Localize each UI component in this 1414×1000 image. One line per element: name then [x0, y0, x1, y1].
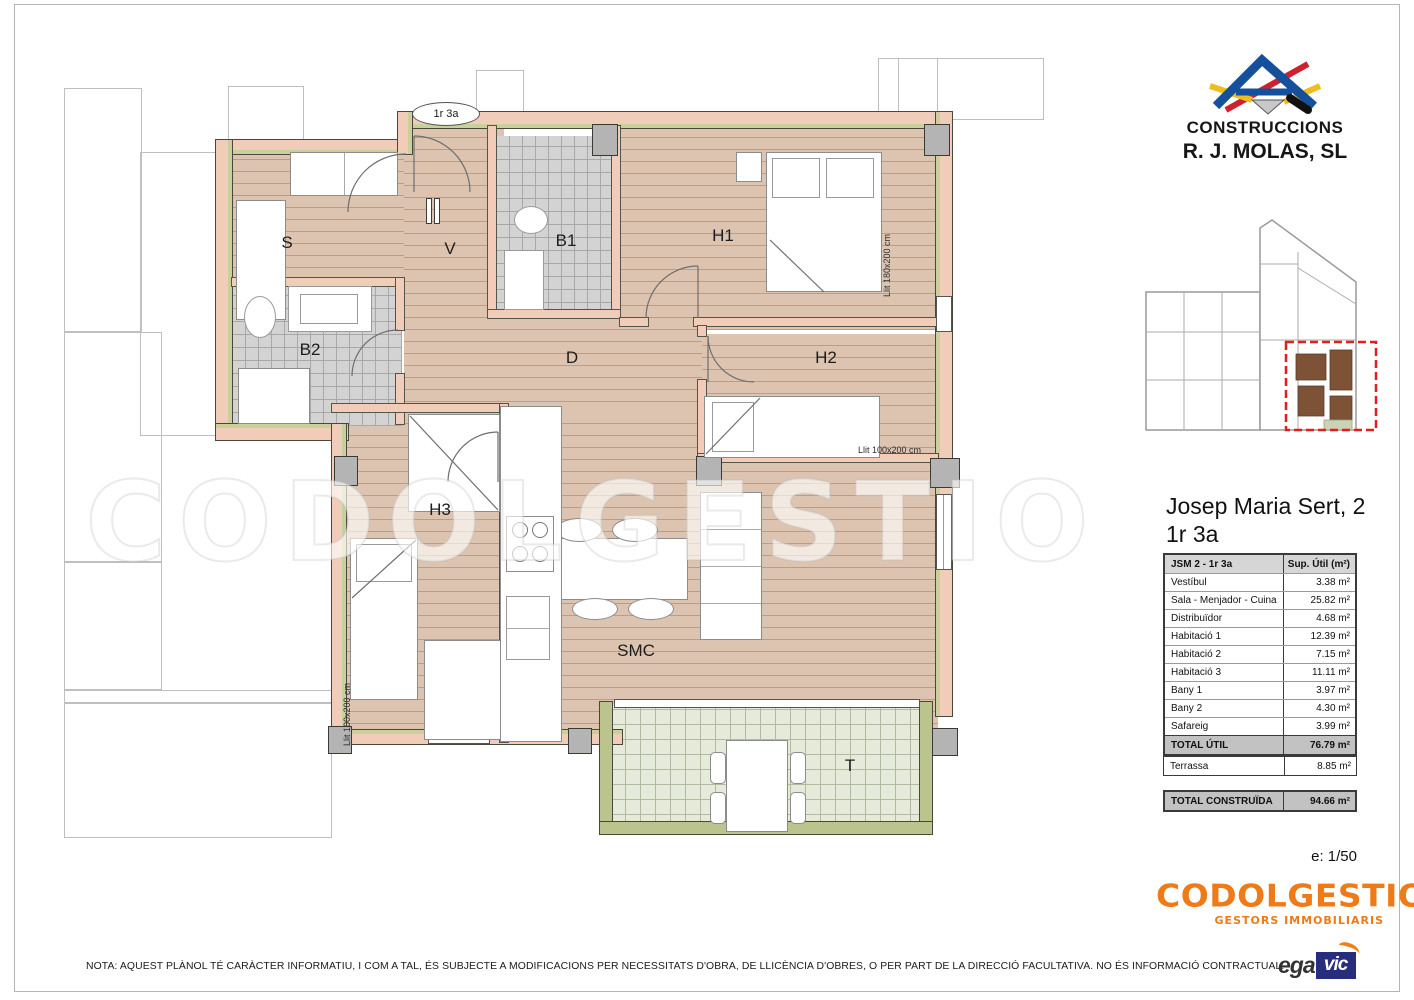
burner-icon [512, 546, 528, 562]
door-hinge [434, 198, 440, 224]
neighbor-terrace-line [64, 702, 332, 704]
sliding-door [614, 699, 920, 708]
total-built-name: TOTAL CONSTRUÏDA [1165, 792, 1283, 810]
floor-plan: S V B1 H1 B2 D H2 H3 SMC T Llit 180x200 … [0, 0, 1130, 1000]
toilet-icon [514, 206, 548, 234]
pillow [826, 158, 874, 198]
row-value: 4.30 m² [1283, 700, 1355, 717]
chair [790, 792, 806, 824]
toilet-icon [244, 296, 276, 338]
exterior-wall [936, 112, 952, 716]
chair [612, 518, 658, 542]
row-value: 3.38 m² [1283, 574, 1355, 591]
table-header-value: Sup. Útil (m²) [1283, 555, 1355, 573]
terrace-wall [600, 702, 612, 834]
kitchen-sink [506, 596, 550, 660]
dining-table [548, 538, 688, 600]
wall-segment [488, 126, 496, 318]
egavic-text-left: ega [1278, 952, 1315, 979]
table-row: Habitació 112.39 m² [1165, 627, 1355, 645]
stove-icon [506, 516, 554, 572]
address-line: Josep Maria Sert, 2 [1166, 492, 1365, 520]
table-row: Vestíbul3.38 m² [1165, 573, 1355, 591]
wall-segment [698, 326, 706, 336]
unit-tag-label: 1r 3a [433, 108, 458, 120]
row-value: 11.11 m² [1283, 664, 1355, 681]
neighbor-outline [64, 562, 162, 690]
total-built-table: TOTAL CONSTRUÏDA 94.66 m² [1163, 790, 1357, 812]
table-row: Safareig3.99 m² [1165, 717, 1355, 735]
room-label-h1: H1 [712, 226, 734, 246]
exterior-wall [216, 424, 348, 440]
window [936, 494, 952, 570]
plan-sheet: { "logo": {"line1": "CONSTRUCCIONS", "li… [0, 0, 1414, 1000]
shower [238, 368, 310, 424]
egavic-box: vic [1316, 952, 1356, 979]
terrassa-value: 8.85 m² [1284, 757, 1356, 775]
row-value: 25.82 m² [1283, 592, 1355, 609]
column [930, 458, 960, 488]
chair [710, 752, 726, 784]
terrassa-table: Terrassa 8.85 m² [1163, 756, 1357, 776]
window [936, 296, 952, 332]
pillow [772, 158, 820, 198]
room-label-smc: SMC [617, 641, 655, 661]
chair [556, 518, 602, 542]
kitchen-counter [500, 406, 562, 742]
room-label-d: D [566, 348, 578, 368]
row-value: 3.97 m² [1283, 682, 1355, 699]
sink [504, 250, 544, 310]
pillow [712, 402, 754, 452]
table-row: Bany 24.30 m² [1165, 699, 1355, 717]
chair [790, 752, 806, 784]
row-name: Bany 2 [1165, 700, 1283, 717]
mini-terrace [1324, 420, 1352, 430]
builder-logo-text: CONSTRUCCIONS R. J. MOLAS, SL [1150, 118, 1380, 164]
wardrobe [290, 152, 398, 196]
table-row: Distribuïdor4.68 m² [1165, 609, 1355, 627]
burner-icon [532, 546, 548, 562]
burner-icon [532, 522, 548, 538]
unit-line: 1r 3a [1166, 520, 1365, 548]
wall-segment [488, 310, 620, 318]
bed-size-annotation: Llit 100x200 cm [858, 445, 921, 455]
column [696, 456, 722, 486]
row-name: Bany 1 [1165, 682, 1283, 699]
row-name: Sala - Menjador - Cuina [1165, 592, 1283, 609]
door-hinge [426, 198, 432, 224]
room-label-v: V [444, 239, 455, 259]
wall-segment [620, 318, 648, 326]
nightstand [736, 152, 762, 182]
room-label-h2: H2 [815, 348, 837, 368]
scale-label: e: 1/50 [1163, 848, 1357, 865]
wall-segment [332, 404, 508, 412]
exterior-wall [398, 112, 950, 128]
column [924, 124, 950, 156]
codolgestio-logo: CODOLGESTIO [1156, 877, 1384, 914]
wall-segment [396, 374, 404, 424]
table-row: Habitació 311.11 m² [1165, 663, 1355, 681]
column [568, 728, 592, 754]
chair [628, 598, 674, 620]
pillow [356, 544, 412, 582]
total-util-row: TOTAL ÚTIL 76.79 m² [1165, 735, 1355, 754]
row-value: 4.68 m² [1283, 610, 1355, 627]
room-label-b1: B1 [556, 231, 577, 251]
row-name: Habitació 2 [1165, 646, 1283, 663]
room-label-h3: H3 [429, 500, 451, 520]
codolgestio-tagline: GESTORS IMMOBILIARIS [1156, 914, 1384, 927]
chair [710, 792, 726, 824]
page-title: Josep Maria Sert, 2 1r 3a [1166, 492, 1365, 548]
exterior-wall [216, 140, 232, 440]
row-value: 7.15 m² [1283, 646, 1355, 663]
egavic-logo: ega vic [1278, 948, 1356, 982]
area-table: JSM 2 - 1r 3a Sup. Útil (m²) Vestíbul3.3… [1163, 553, 1357, 756]
column [932, 728, 958, 756]
bed-size-annotation: Llit 100x200 cm [342, 646, 352, 746]
total-name: TOTAL ÚTIL [1165, 736, 1283, 754]
row-name: Habitació 3 [1165, 664, 1283, 681]
row-name: Habitació 1 [1165, 628, 1283, 645]
total-built-value: 94.66 m² [1283, 792, 1355, 810]
dresser [424, 640, 502, 740]
table-header-row: JSM 2 - 1r 3a Sup. Útil (m²) [1165, 555, 1355, 573]
room-label-b2: B2 [300, 340, 321, 360]
row-name: Vestíbul [1165, 574, 1283, 591]
builder-name-line1: CONSTRUCCIONS [1150, 118, 1380, 138]
egavic-text-right: vic [1324, 954, 1347, 976]
column [334, 456, 358, 486]
row-value: 3.99 m² [1283, 718, 1355, 735]
burner-icon [512, 522, 528, 538]
builder-name-line2: R. J. MOLAS, SL [1150, 140, 1380, 164]
table-row: Bany 13.97 m² [1165, 681, 1355, 699]
neighbor-terrace-outline [64, 690, 332, 838]
table-row: Sala - Menjador - Cuina25.82 m² [1165, 591, 1355, 609]
wardrobe [408, 414, 500, 512]
row-name: Safareig [1165, 718, 1283, 735]
total-value: 76.79 m² [1283, 736, 1355, 754]
terrace-table [726, 740, 788, 832]
room-label-s: S [281, 233, 292, 253]
bed-size-annotation: Llit 180x200 cm [882, 205, 892, 297]
column [592, 124, 618, 156]
exterior-wall [398, 112, 412, 154]
builder-logo-icon [1196, 48, 1336, 118]
row-name: Distribuïdor [1165, 610, 1283, 627]
table-row: Habitació 27.15 m² [1165, 645, 1355, 663]
footer-note: NOTA: AQUEST PLÀNOL TÉ CARÀCTER INFORMAT… [86, 961, 1284, 972]
neighbor-outline [64, 332, 162, 562]
sink [300, 294, 358, 324]
sofa [700, 492, 762, 640]
wall-segment [694, 318, 938, 326]
row-value: 12.39 m² [1283, 628, 1355, 645]
neighbor-outline [898, 58, 938, 120]
terrassa-name: Terrassa [1164, 757, 1284, 775]
wall-segment [396, 278, 404, 330]
table-header-name: JSM 2 - 1r 3a [1165, 555, 1283, 573]
room-label-t: T [845, 756, 855, 776]
unit-tag: 1r 3a [412, 102, 480, 126]
chair [572, 598, 618, 620]
terrace-wall [920, 702, 932, 834]
neighbor-outline [64, 88, 142, 332]
situation-mini-plan [1138, 172, 1390, 450]
